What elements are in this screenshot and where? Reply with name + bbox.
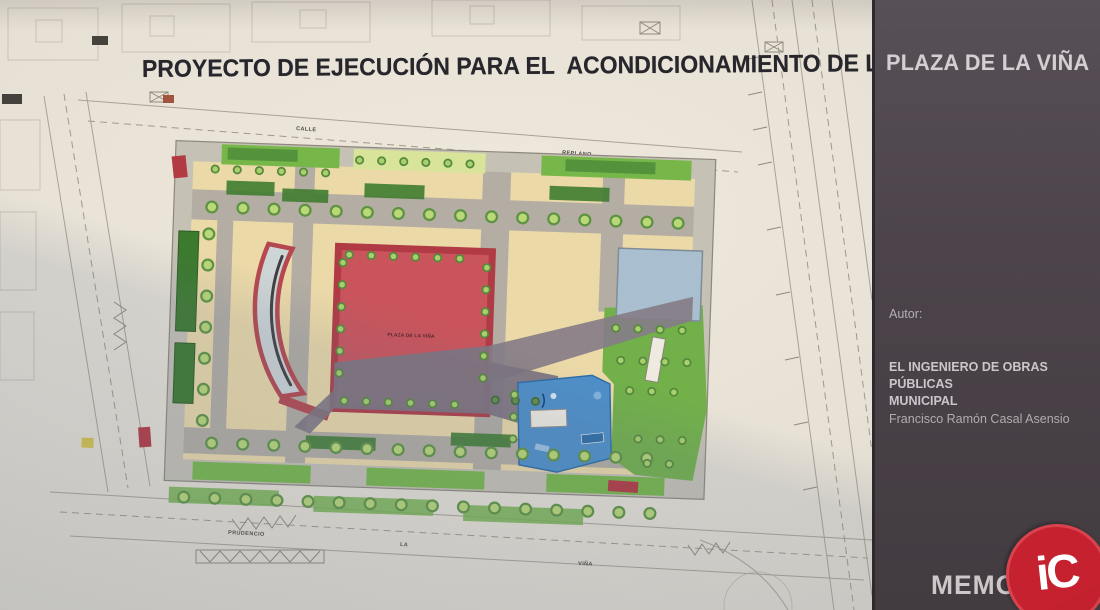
bus-bay-hatch [200, 551, 320, 562]
corner-marker [172, 155, 188, 178]
background-block [432, 0, 550, 36]
background-block [0, 212, 36, 290]
background-block [0, 120, 40, 190]
background-building [36, 20, 62, 42]
parking-stall-ticks [744, 57, 817, 490]
author-name: Francisco Ramón Casal Asensio [889, 411, 1093, 428]
hedge [364, 183, 424, 199]
background-building [300, 10, 326, 28]
street-label-la: LA [400, 542, 408, 548]
author-label: Autor: [889, 306, 1093, 323]
avenue-lane-line [832, 0, 872, 300]
hedge [227, 147, 297, 161]
hedge [451, 432, 511, 447]
hedge [226, 180, 274, 196]
background-building [470, 6, 494, 24]
avenue-lane-dashed [772, 0, 854, 610]
street-edge-left [44, 96, 108, 492]
dark-mark [2, 94, 22, 104]
street-label-calle: CALLE [296, 126, 317, 133]
green-building-strip [173, 343, 195, 404]
background-block [8, 8, 98, 60]
author-role-line2: MUNICIPAL [889, 393, 1093, 410]
playground-kiosk [530, 409, 567, 427]
ic-logo-text: iC [1033, 542, 1080, 609]
green-building-strip [175, 231, 198, 332]
photographed-plan-board: CALLE REPLANO PRUDENCIO LA VIÑA [0, 0, 1100, 610]
avenue-lane-line [752, 0, 834, 610]
background-block [122, 4, 230, 52]
play-equipment-icon [581, 433, 604, 444]
yellow-marker [81, 438, 93, 448]
avenue-lane-line [792, 0, 872, 596]
street-label-prudencio: PRUDENCIO [228, 530, 265, 538]
dark-mark [92, 36, 108, 45]
background-block [582, 6, 680, 40]
plaza-plan: PLAZA DE LA VIÑA [79, 138, 716, 530]
street-edge-bottom [70, 536, 864, 580]
document-title: PROYECTO DE EJECUCIÓN PARA EL ACONDICION… [142, 50, 896, 84]
corner-marker [138, 427, 151, 448]
author-role-line1: EL INGENIERO DE OBRAS PÚBLICAS [889, 359, 1093, 393]
street-label-vina: VIÑA [578, 560, 593, 568]
ic-logo: iC [1001, 519, 1100, 610]
roundabout [724, 572, 792, 610]
right-panel: PLAZA DE LA VIÑA Autor: EL INGENIERO DE … [872, 0, 1100, 610]
site-plan-drawing: CALLE REPLANO PRUDENCIO LA VIÑA [0, 0, 872, 610]
hedge [282, 188, 328, 203]
red-mark [163, 95, 174, 103]
background-building [150, 16, 174, 36]
author-block: Autor: EL INGENIERO DE OBRAS PÚBLICAS MU… [889, 306, 1093, 427]
hedge [549, 186, 609, 202]
background-block [0, 312, 34, 380]
panel-title: PLAZA DE LA VIÑA [886, 50, 1089, 76]
kiosk-rect [530, 409, 567, 427]
hatch-symbol [640, 22, 660, 34]
corner-marker [608, 480, 639, 493]
background-block [252, 2, 370, 42]
